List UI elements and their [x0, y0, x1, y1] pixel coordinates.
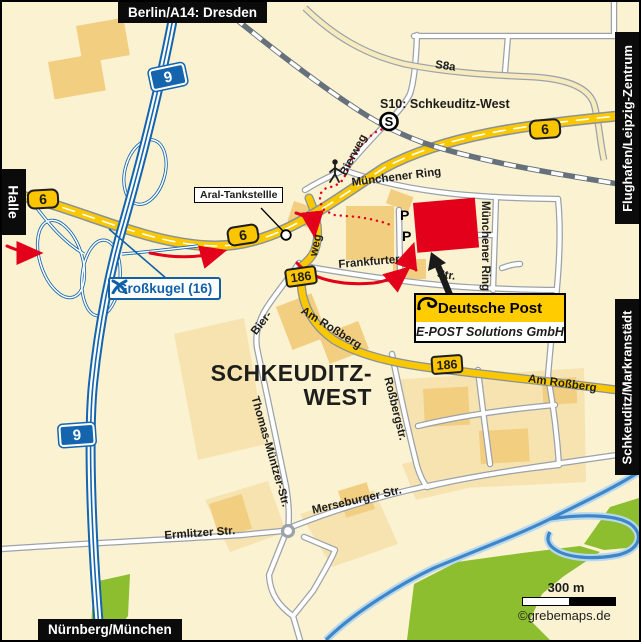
district-name: SCHKEUDITZ- WEST: [200, 362, 372, 410]
road-badge-b6-east: 6: [528, 118, 561, 140]
scale-bar-white: [523, 598, 569, 605]
badge-text: 186: [436, 357, 458, 372]
edge-label-right-bottom-text: Schkeuditz/Markranstädt: [620, 310, 635, 464]
street-label-muenchener-ring-vertical: Münchener Ring: [479, 201, 491, 291]
parking-marker-2: P: [402, 228, 411, 244]
badge-text: 186: [290, 268, 313, 285]
edge-label-top: Berlin/A14: Dresden: [118, 2, 267, 23]
district-line2: WEST: [200, 386, 372, 410]
badge-text: 6: [238, 226, 248, 243]
badge-text: 9: [162, 68, 174, 86]
badge-text: 6: [541, 121, 550, 138]
interchange-icon: [110, 279, 128, 294]
company-subtitle: E-POST Solutions GmbH: [416, 322, 564, 341]
scale-bar: [522, 597, 616, 606]
badge-text: 6: [39, 191, 48, 207]
aral-callout: Aral-Tankstellle: [194, 187, 283, 203]
parking-marker-1: P: [400, 207, 409, 223]
edge-label-right-bottom: Schkeuditz/Markranstädt: [615, 299, 639, 475]
district-line1: SCHKEUDITZ-: [200, 362, 372, 386]
roundabout: [283, 526, 294, 537]
scale-distance: 300 m: [518, 580, 614, 595]
edge-label-right-top-text: Flughafen/Leipzig-Zentrum: [620, 45, 635, 212]
map-credit: ©grebemaps.de: [518, 608, 618, 623]
edge-label-bottom-text: Nürnberg/München: [48, 622, 172, 637]
edge-label-top-text: Berlin/A14: Dresden: [128, 5, 257, 20]
scale-bar-black: [569, 598, 615, 605]
grosskugel-text: Großkugel (16): [117, 281, 212, 296]
destination-building: [413, 198, 479, 253]
edge-label-right-top: Flughafen/Leipzig-Zentrum: [615, 32, 639, 224]
grosskugel-callout: Großkugel (16): [108, 277, 221, 300]
road-badge-186-east: 186: [430, 354, 463, 375]
edge-label-left-text: Halle: [6, 185, 22, 218]
edge-label-left: Halle: [2, 169, 26, 235]
sbahn-symbol: S: [382, 114, 396, 129]
posthorn-icon: [416, 295, 441, 312]
map-canvas: Berlin/A14: Dresden Halle Flughafen/Leip…: [0, 0, 641, 642]
badge-text: 9: [72, 426, 82, 444]
road-badge-b6-west: 6: [26, 188, 59, 210]
company-box: Deutsche Post E-POST Solutions GmbH: [414, 293, 566, 343]
company-box-header: Deutsche Post: [416, 295, 564, 322]
edge-label-bottom: Nürnberg/München: [38, 619, 182, 640]
motorway-badge-a9-south: 9: [58, 423, 95, 447]
station-label: S10: Schkeuditz-West: [380, 97, 510, 111]
scale-widget: 300 m ©grebemaps.de: [518, 580, 618, 623]
company-name: Deutsche Post: [438, 300, 542, 317]
